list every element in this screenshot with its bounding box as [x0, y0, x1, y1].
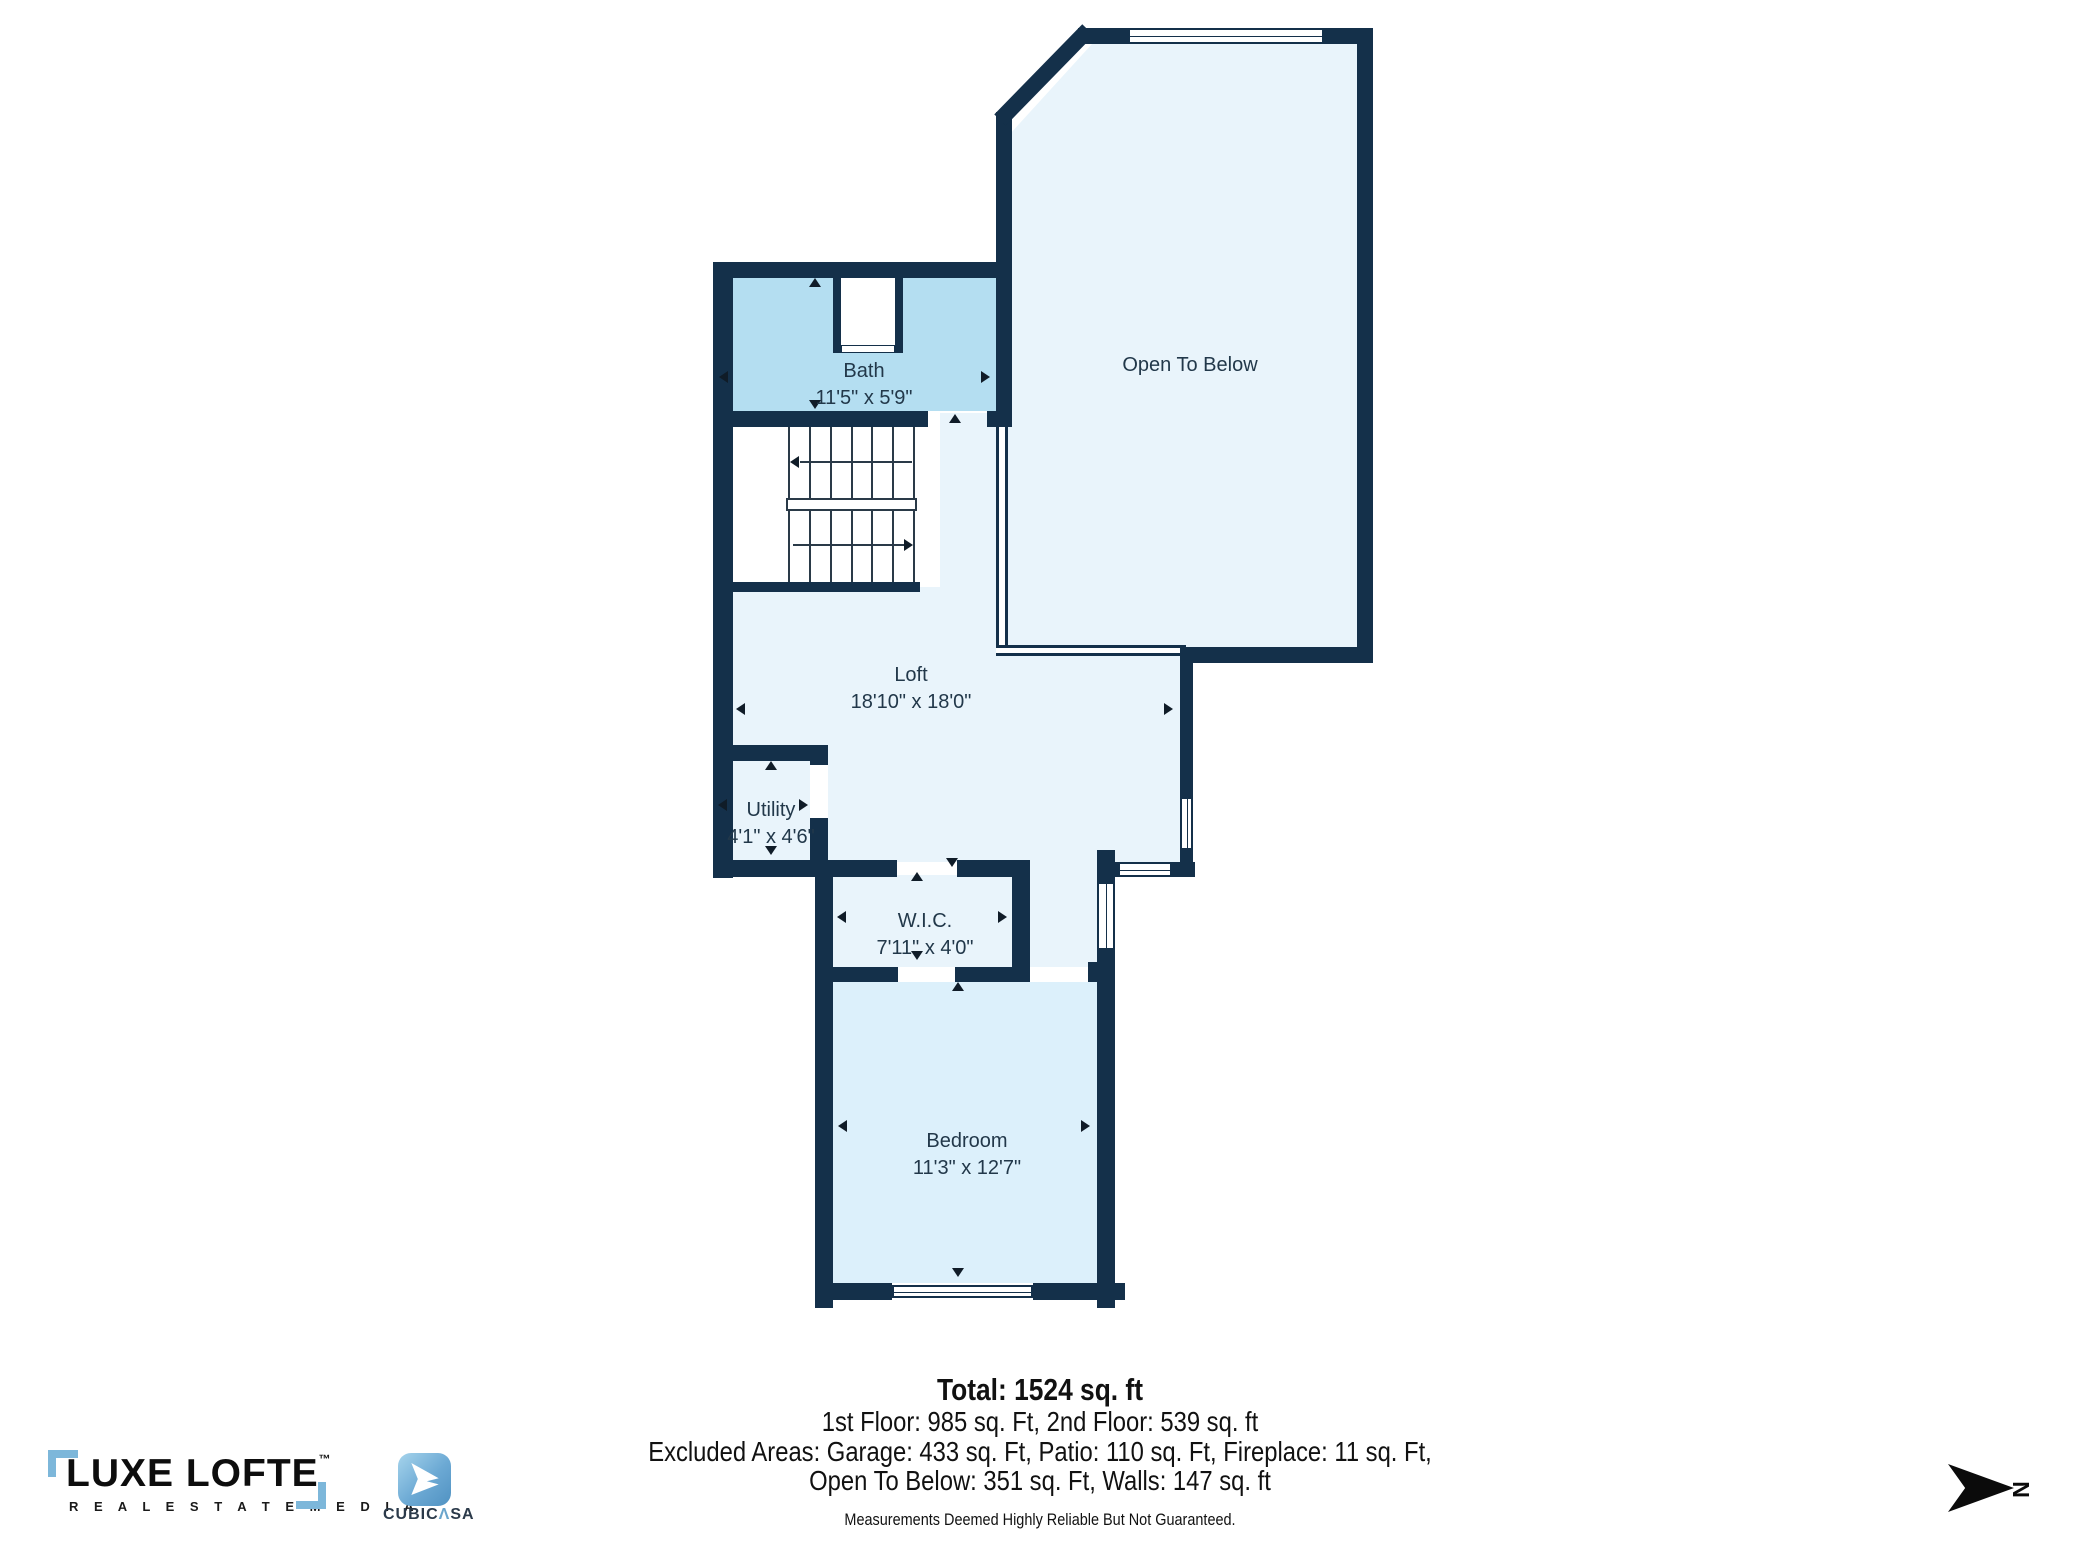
loft-fill: [940, 413, 996, 587]
summary-total: Total: 1524 sq. ft: [156, 1372, 1924, 1408]
cubicasa-text-post: SA: [450, 1506, 474, 1523]
room-dims: 11'3" x 12'7": [857, 1155, 1077, 1182]
window-bedroom-bottom: [892, 1285, 1033, 1298]
dim-arrow: [981, 371, 990, 383]
wall-bedroom-bottom-left: [815, 1283, 892, 1300]
nook-interior: [841, 278, 895, 345]
room-dims: 11'5" x 5'9": [754, 385, 974, 412]
stair-tread: [830, 511, 832, 582]
wall-bedroom-top-a: [815, 967, 898, 982]
open-to-below-fill: [1004, 44, 1357, 647]
wall-nook-left: [833, 278, 841, 353]
loft-fill: [733, 587, 996, 655]
room-name: Bath: [754, 358, 974, 385]
wall-wic-top-left: [713, 860, 897, 877]
wall-bedroom-top-b: [955, 967, 1030, 982]
room-name: W.I.C.: [815, 908, 1035, 935]
stair-tread: [788, 511, 790, 582]
luxe-name-text: LUXE LOFTE: [66, 1452, 319, 1495]
room-dims: 18'10" x 18'0": [801, 689, 1021, 716]
wall-bath-bottom-right: [987, 411, 1012, 427]
dim-arrow: [765, 761, 777, 770]
wall-bedroom-right: [1097, 950, 1115, 1308]
wall-door-bump: [1088, 962, 1097, 982]
room-dims: 4'1" x 4'6": [661, 824, 881, 851]
stair-landing: [786, 498, 917, 511]
stair-tread: [809, 511, 811, 582]
railing-vertical: [996, 419, 1008, 656]
trademark-symbol: ™: [319, 1452, 332, 1466]
wall-bath-otb-divider: [996, 112, 1012, 427]
room-label-open-to-below: Open To Below: [1080, 352, 1300, 379]
wall-otb-bottom: [1180, 647, 1373, 663]
dim-arrow: [736, 703, 745, 715]
wall-step-right: [1172, 862, 1195, 877]
stair-tread: [871, 511, 873, 582]
dim-arrow: [1081, 1120, 1090, 1132]
cubicasa-text-pre: CUBIC: [383, 1506, 439, 1523]
stair-arrow-down-head: [904, 539, 913, 551]
dim-arrow: [1164, 703, 1173, 715]
room-label-bedroom: Bedroom 11'3" x 12'7": [857, 1128, 1077, 1182]
room-dims: 7'11" x 4'0": [815, 935, 1035, 962]
wall-nook-right: [895, 278, 903, 353]
window-loft-step: [1118, 862, 1172, 877]
nook-shelf: [841, 345, 895, 353]
logo-bracket-bottomright: [296, 1501, 326, 1509]
stair-tread: [851, 511, 853, 582]
room-label-loft: Loft 18'10" x 18'0": [801, 662, 1021, 716]
dim-arrow: [911, 872, 923, 881]
wall-left-outer: [713, 262, 733, 878]
stair-arrow-up-line: [800, 461, 912, 463]
room-name: Bedroom: [857, 1128, 1077, 1155]
summary-floors: 1st Floor: 985 sq. Ft, 2nd Floor: 539 sq…: [156, 1406, 1924, 1438]
railing-horizontal: [996, 645, 1186, 656]
floor-plan-page: Bath 11'5" x 5'9" Open To Below Loft 18'…: [0, 0, 2080, 1560]
stair-arrow-up-head: [790, 456, 799, 468]
room-label-wic: W.I.C. 7'11" x 4'0": [815, 908, 1035, 962]
luxe-tagline: R E A L E S T A T E M E D I A: [69, 1499, 419, 1514]
wall-corridor-right-upper: [1097, 850, 1115, 882]
dim-arrow: [838, 1120, 847, 1132]
dim-arrow: [809, 278, 821, 287]
room-name: Open To Below: [1080, 352, 1300, 379]
room-name: Utility: [661, 797, 881, 824]
window-otb-top: [1128, 28, 1324, 44]
wall-bedroom-bottom-right: [1033, 1283, 1125, 1300]
door-arrow-bath: [949, 414, 961, 423]
hallway-fill: [1030, 862, 1097, 967]
luxe-lofte-wordmark: LUXE LOFTE™: [66, 1452, 332, 1496]
logo-bracket-topleft: [48, 1450, 56, 1477]
window-loft-right: [1180, 797, 1193, 850]
cubicasa-arrow-icon: [407, 1460, 443, 1498]
dim-arrow: [952, 1268, 964, 1277]
door-arrow-wic-top: [946, 858, 958, 867]
room-label-utility: Utility 4'1" x 4'6": [661, 797, 881, 851]
north-arrow-icon: [1948, 1464, 2014, 1512]
wall-utility-right-upper: [810, 745, 828, 765]
north-label: N: [2007, 1481, 2034, 1498]
cubicasa-caret: Λ: [439, 1506, 451, 1523]
window-corridor: [1097, 882, 1115, 950]
wall-bath-top: [713, 262, 1012, 278]
stair-arrow-down-line: [793, 544, 905, 546]
wall-stair-stub: [713, 582, 920, 592]
wall-otb-right: [1357, 28, 1373, 663]
cubicasa-app-icon: [398, 1453, 451, 1506]
door-arrow-bedroom: [952, 982, 964, 991]
wall-loft-right-upper: [1180, 663, 1193, 797]
stair-tread: [892, 511, 894, 582]
room-label-bath: Bath 11'5" x 5'9": [754, 358, 974, 412]
room-name: Loft: [801, 662, 1021, 689]
wall-bath-bottom-left: [713, 411, 928, 427]
dim-arrow: [719, 371, 728, 383]
cubicasa-wordmark: CUBICΛSA: [383, 1506, 475, 1524]
